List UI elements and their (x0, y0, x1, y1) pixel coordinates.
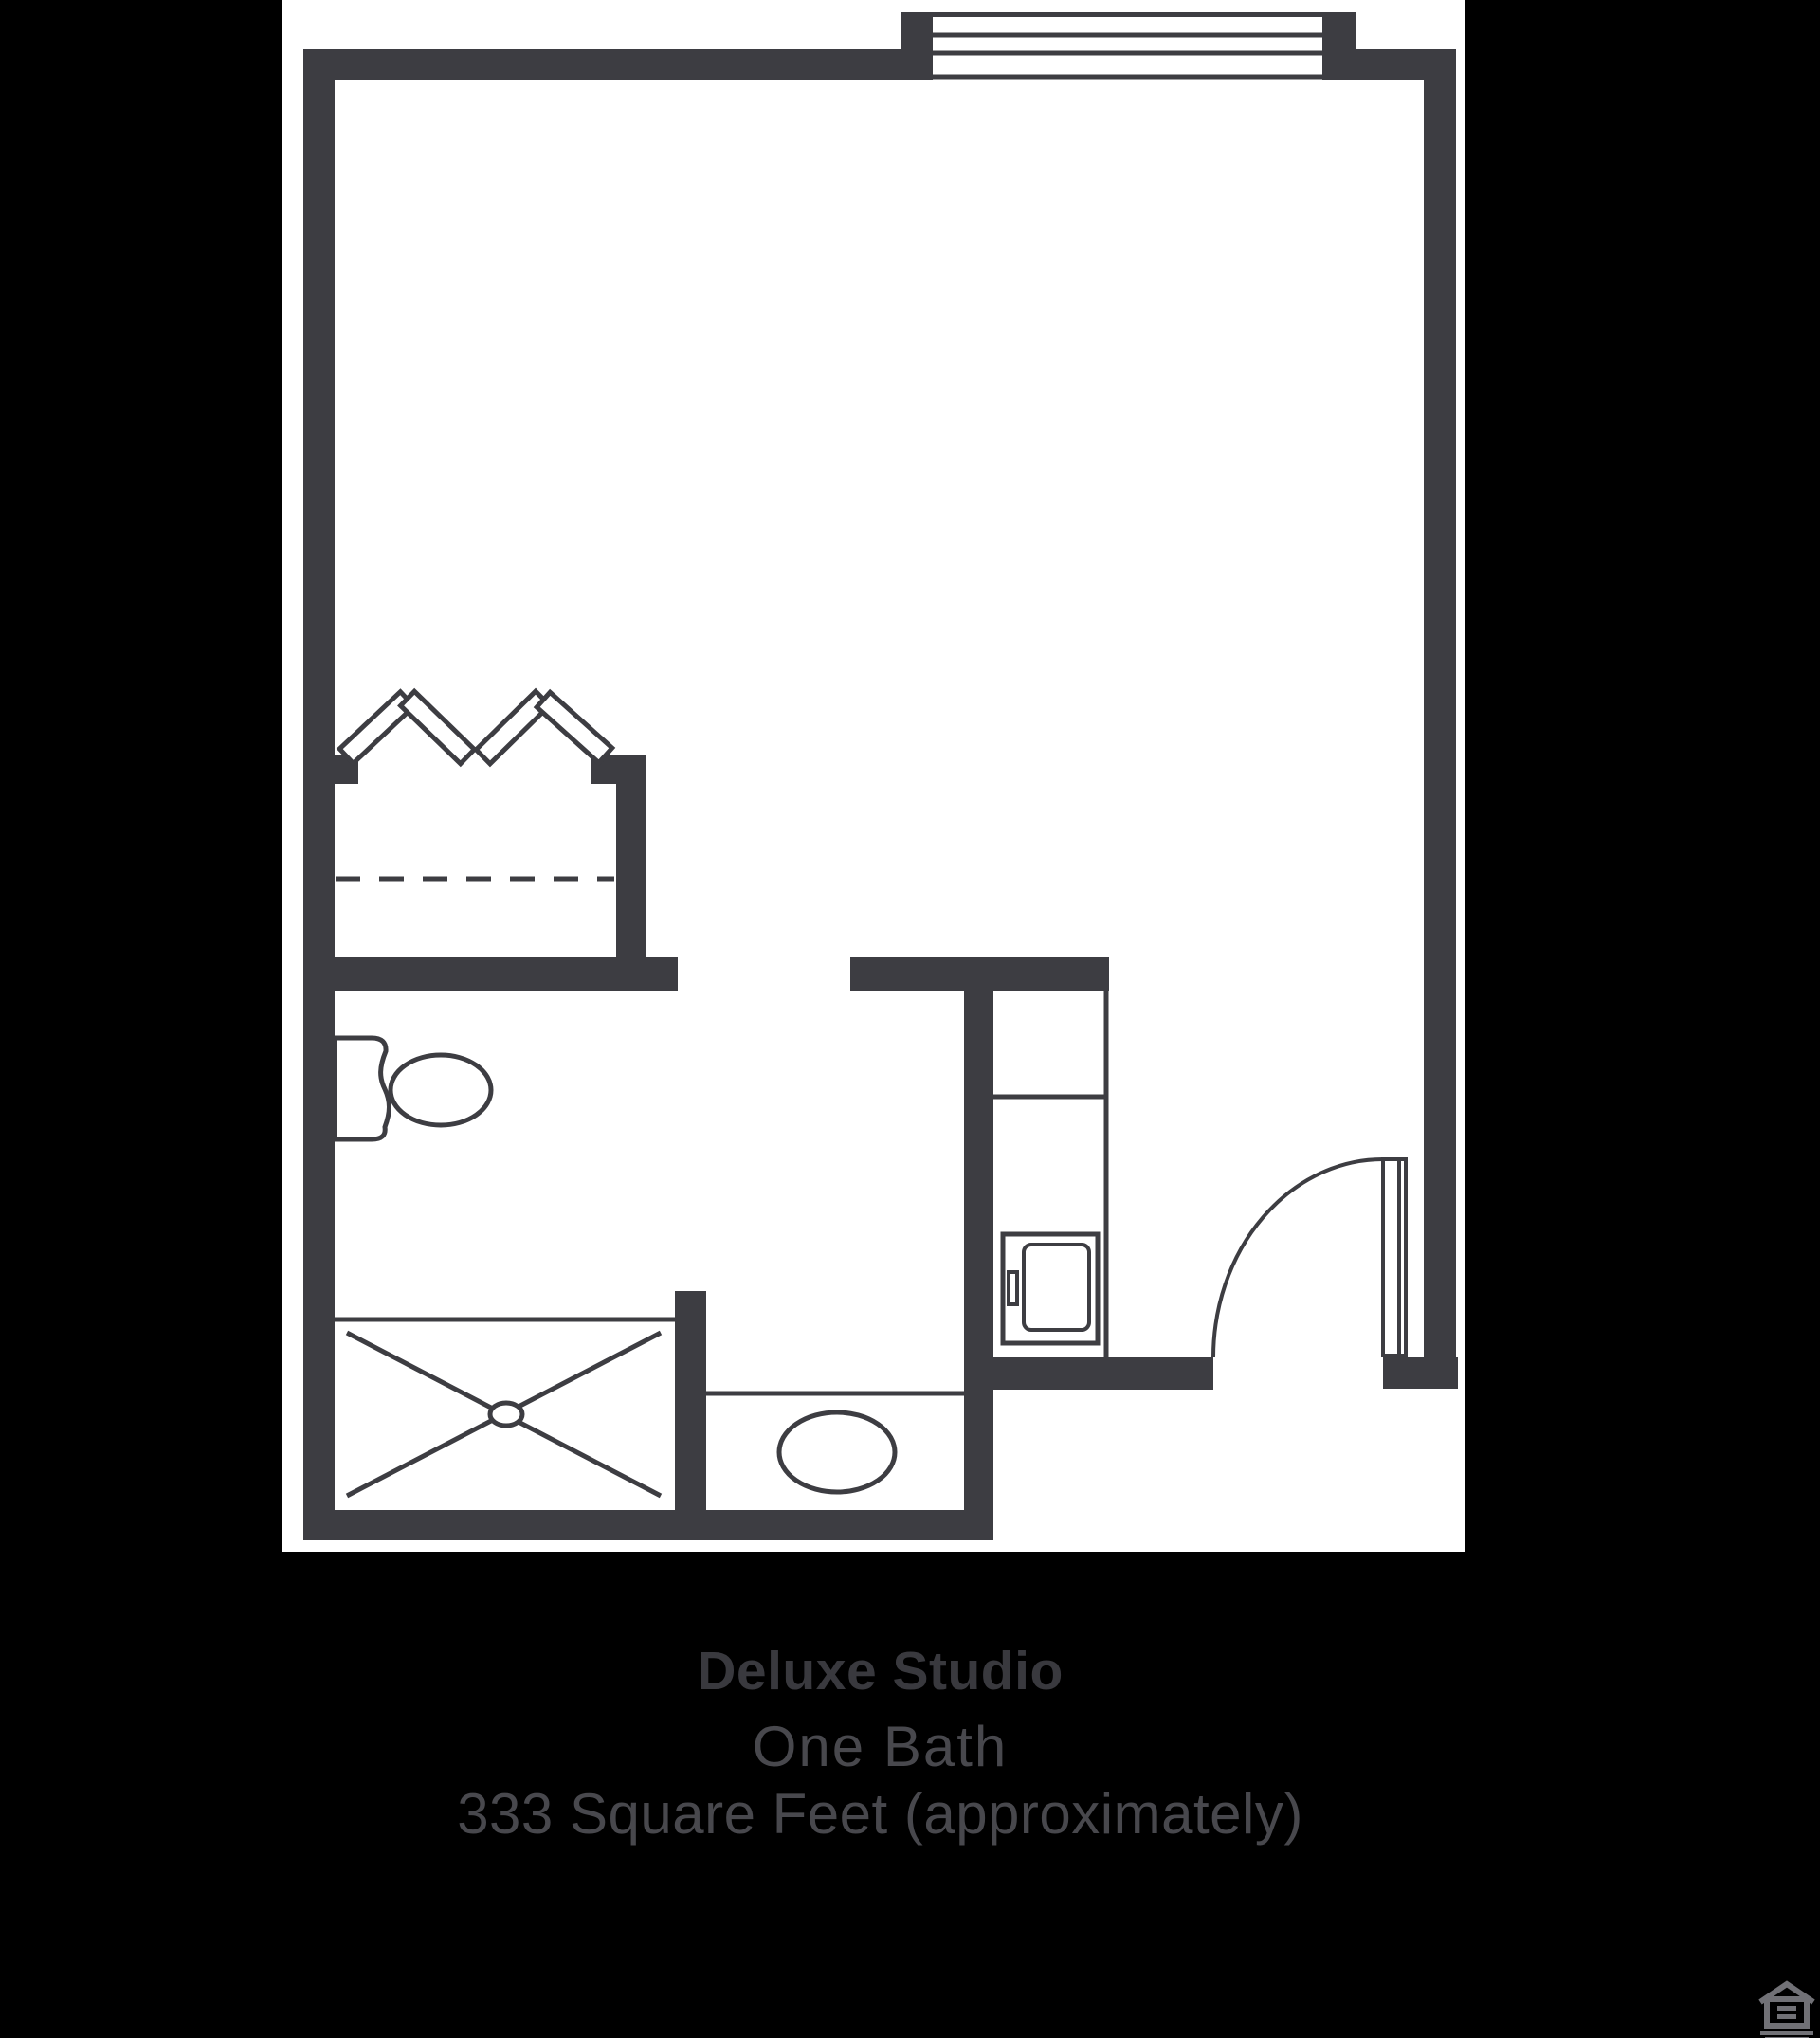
bifold-closet-doors (339, 691, 612, 764)
floor-plan (282, 0, 1465, 1552)
top-wall-left (303, 49, 901, 80)
equal-housing-opportunity-icon (1756, 1980, 1817, 2038)
plan-title: Deluxe Studio (288, 1643, 1472, 1700)
shower-drain (490, 1403, 522, 1426)
door-leaf (1383, 1159, 1406, 1356)
exterior-walls (303, 49, 1456, 1540)
entry-door (1213, 1159, 1406, 1357)
kitchenette (850, 957, 1109, 1510)
plan-bath-count: One Bath (288, 1719, 1472, 1775)
closet (303, 691, 678, 991)
entry-wall-left (993, 1357, 1213, 1390)
closet-bottom-wall (303, 957, 678, 991)
appliance (1003, 1234, 1098, 1343)
page-background: Deluxe Studio One Bath 333 Square Feet (… (0, 0, 1820, 2038)
window (901, 12, 1356, 80)
kitchen-vertical-wall (964, 991, 993, 1510)
closet-right-wall (616, 784, 646, 957)
floor-plan-canvas (282, 0, 1465, 1552)
appliance-door (1024, 1245, 1089, 1330)
entry-wall-right (1383, 1357, 1458, 1389)
window-jamb-right (1322, 12, 1356, 80)
equals-bar (1777, 2006, 1796, 2011)
toilet-tank (335, 1038, 390, 1139)
vanity-sink (706, 1393, 964, 1492)
window-jamb-left (901, 12, 933, 80)
plan-square-footage: 333 Square Feet (approximately) (288, 1786, 1472, 1843)
kitchen-top-wall (850, 957, 1109, 991)
shower-right-wall (675, 1291, 706, 1510)
logo-text-row (1760, 2031, 1813, 2035)
toilet-bowl (391, 1055, 491, 1125)
toilet (335, 1038, 491, 1139)
appliance-handle (1009, 1272, 1017, 1304)
shower (335, 1291, 706, 1510)
bottom-wall (303, 1510, 993, 1540)
equals-bar (1777, 2014, 1796, 2019)
bifold-panel (537, 692, 612, 762)
house-body (1767, 1999, 1807, 2026)
door-swing-arc (1213, 1159, 1383, 1357)
sink-bowl (779, 1412, 895, 1492)
left-wall (303, 49, 335, 1540)
right-wall (1424, 49, 1456, 1389)
bifold-panel (401, 691, 475, 763)
